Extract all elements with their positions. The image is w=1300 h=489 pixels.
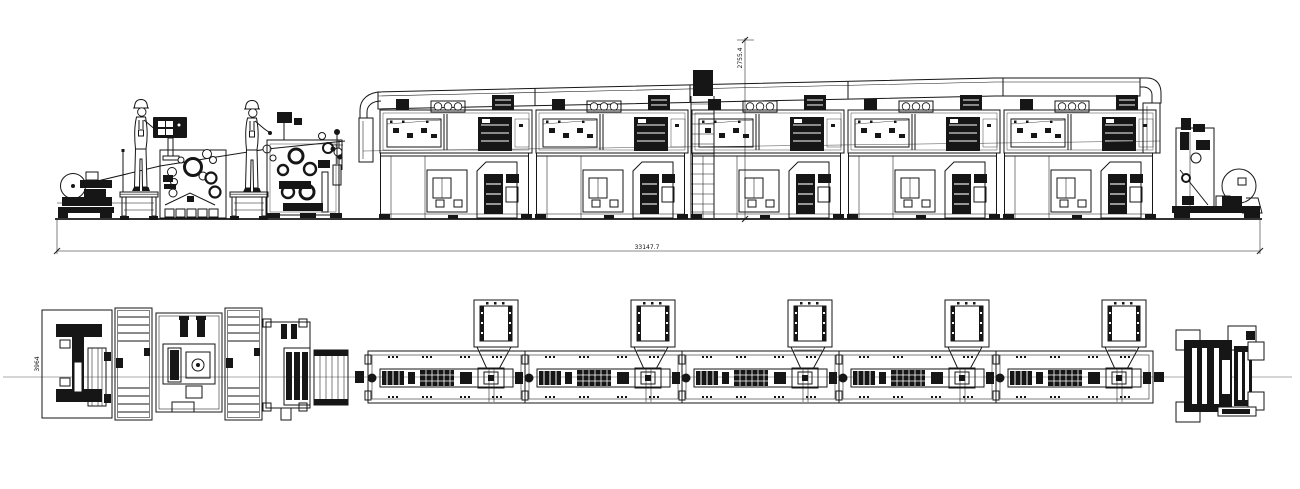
oven-module-elevation-1 bbox=[379, 95, 532, 219]
oven-module-plan-5 bbox=[993, 300, 1153, 403]
machine-height-label: 2755.4 bbox=[737, 47, 744, 68]
oven-module-plan-2 bbox=[522, 300, 682, 403]
oven-module-elevation-5 bbox=[1003, 95, 1156, 219]
rewinder-elevation bbox=[1172, 118, 1262, 218]
rewinder-plan bbox=[1154, 326, 1264, 422]
unwinder-plan bbox=[42, 310, 112, 418]
oven-module-plan-3 bbox=[679, 300, 839, 403]
overall-length-label: 33147.7 bbox=[635, 244, 660, 251]
operator-platform-plan-1 bbox=[115, 308, 152, 420]
unwinder-elevation bbox=[57, 172, 125, 218]
cad-drawing-canvas: 33147.7 2755.4 bbox=[0, 0, 1300, 489]
plan-view: 3964 bbox=[3, 300, 1292, 422]
control-panel bbox=[153, 117, 187, 160]
length-dimension: 33147.7 bbox=[54, 220, 1263, 254]
oven-module-plan-4 bbox=[836, 300, 996, 403]
oven-module-elevation-2 bbox=[535, 95, 688, 219]
operator-platform-plan-2 bbox=[225, 308, 262, 420]
production-line-drawing: 33147.7 2755.4 bbox=[0, 0, 1300, 489]
operator-platform-2 bbox=[230, 192, 268, 220]
elevation-view: 33147.7 2755.4 bbox=[54, 37, 1263, 254]
ladder-tip bbox=[122, 149, 125, 152]
duct-outlet-elbow bbox=[1140, 78, 1161, 103]
coating-unit-1-plan bbox=[156, 313, 222, 412]
oven-module-elevation-4 bbox=[847, 95, 1000, 219]
width-dimension: 3964 bbox=[34, 356, 41, 371]
duct-riser-ladder bbox=[691, 70, 714, 218]
coating-unit-2-plan bbox=[263, 319, 364, 420]
operator-platform-1 bbox=[120, 192, 158, 220]
oven-module-plan-1 bbox=[365, 300, 525, 403]
worker-icon-1 bbox=[132, 100, 161, 192]
coating-unit-2 bbox=[266, 112, 342, 218]
machine-width-label: 3964 bbox=[34, 356, 41, 371]
